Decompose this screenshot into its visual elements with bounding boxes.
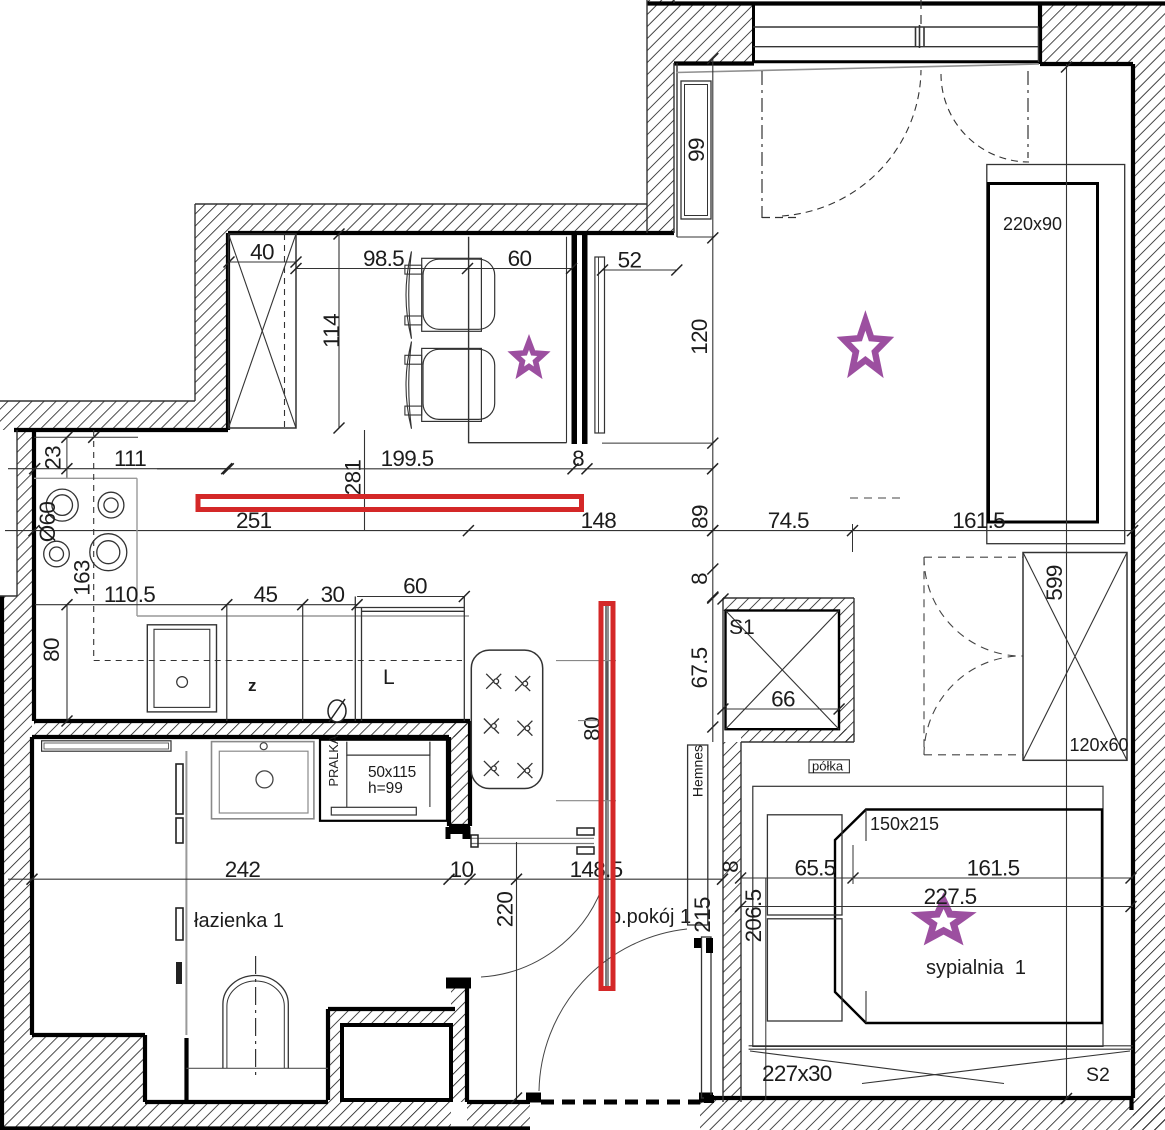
svg-text:120: 120 [687,319,712,355]
svg-text:S2: S2 [1086,1064,1110,1086]
svg-text:67.5: 67.5 [687,647,712,688]
svg-text:227.5: 227.5 [924,884,977,909]
svg-text:242: 242 [225,857,261,882]
svg-text:8: 8 [687,573,712,585]
svg-text:z: z [248,676,257,695]
svg-text:h=99: h=99 [368,780,403,797]
svg-text:łazienka 1: łazienka 1 [194,910,284,932]
svg-text:163: 163 [70,560,95,596]
svg-text:74.5: 74.5 [768,508,809,533]
svg-text:30: 30 [321,582,345,607]
svg-text:120x60: 120x60 [1070,735,1129,755]
svg-text:p.pokój 1: p.pokój 1 [610,906,691,928]
svg-text:Ø60: Ø60 [35,502,60,543]
svg-text:114: 114 [319,314,344,348]
svg-text:66: 66 [771,687,795,712]
svg-text:półka: półka [812,759,844,774]
svg-text:23: 23 [41,446,66,470]
svg-text:599: 599 [1042,565,1067,601]
svg-text:L: L [383,666,395,689]
svg-text:89: 89 [687,505,712,529]
svg-text:45: 45 [254,582,278,607]
svg-text:98.5: 98.5 [363,246,404,271]
svg-text:65.5: 65.5 [795,856,836,881]
svg-text:52: 52 [618,248,642,273]
svg-text:10: 10 [450,857,474,882]
svg-text:60: 60 [508,246,532,271]
svg-text:206.5: 206.5 [741,889,766,942]
svg-text:161.5: 161.5 [952,508,1005,533]
svg-text:281: 281 [341,460,366,496]
svg-text:60: 60 [403,574,427,599]
svg-text:8: 8 [572,446,584,471]
svg-text:161.5: 161.5 [967,856,1020,881]
svg-text:sypialnia 1: sypialnia 1 [926,957,1026,979]
svg-text:PRALKA: PRALKA [326,735,341,787]
svg-text:8: 8 [718,861,743,873]
svg-text:220: 220 [493,892,518,928]
svg-text:99: 99 [684,138,709,162]
svg-text:199.5: 199.5 [381,446,434,471]
svg-text:110.5: 110.5 [104,582,155,607]
svg-text:220x90: 220x90 [1003,214,1062,234]
svg-text:Hemnes: Hemnes [690,745,706,797]
svg-text:50x115: 50x115 [368,764,416,781]
svg-text:227x30: 227x30 [762,1061,832,1086]
svg-text:S1: S1 [729,616,755,639]
svg-text:111: 111 [114,446,146,471]
svg-text:150x215: 150x215 [870,814,939,834]
svg-text:80: 80 [39,638,64,662]
svg-text:148: 148 [581,508,617,533]
svg-text:40: 40 [250,240,274,265]
svg-text:215: 215 [690,897,715,933]
